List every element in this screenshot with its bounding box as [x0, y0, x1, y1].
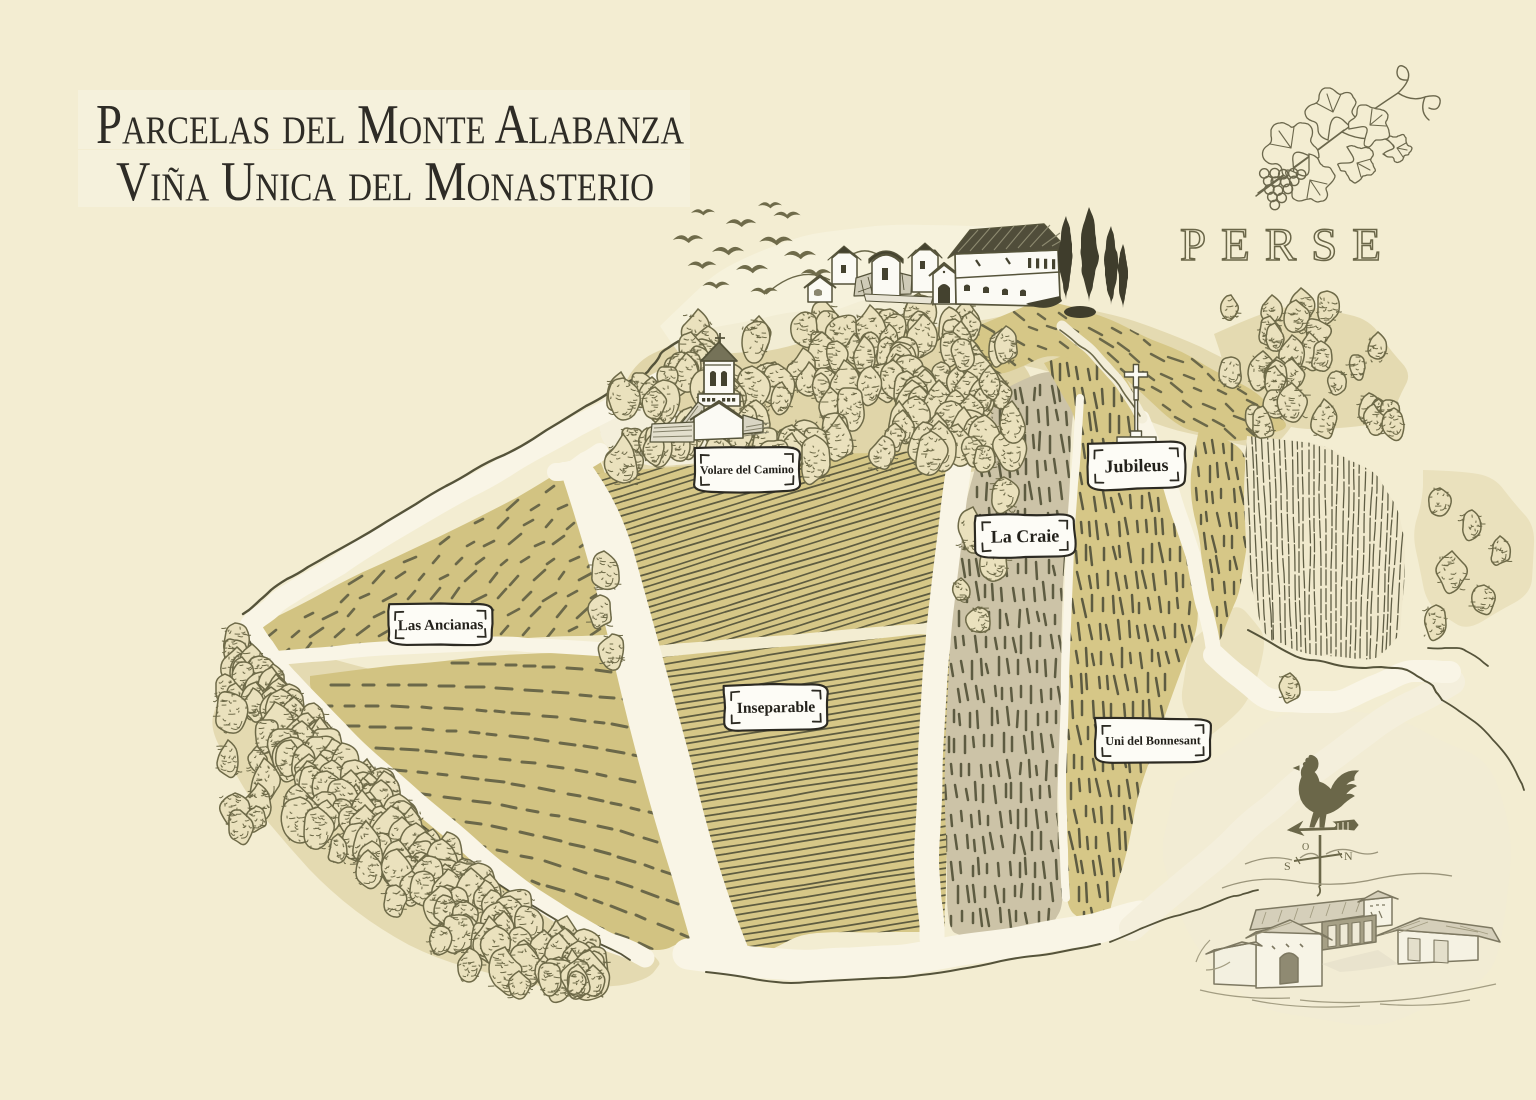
svg-text:PERSE: PERSE: [1180, 219, 1396, 271]
svg-text:Las Ancianas: Las Ancianas: [398, 617, 484, 634]
svg-text:Viña Unica del Monasterio: Viña Unica del Monasterio: [116, 151, 654, 213]
svg-text:Parcelas del Monte Alabanza: Parcelas del Monte Alabanza: [96, 94, 684, 156]
svg-text:Inseparable: Inseparable: [737, 699, 816, 717]
svg-text:Uni del Bonnesant: Uni del Bonnesant: [1105, 733, 1201, 748]
svg-text:La Craie: La Craie: [991, 526, 1060, 547]
svg-text:Volare del Camino: Volare del Camino: [700, 462, 794, 477]
svg-text:Jubileus: Jubileus: [1104, 455, 1169, 477]
svg-text:S: S: [1284, 859, 1291, 873]
svg-text:O: O: [1302, 842, 1309, 853]
